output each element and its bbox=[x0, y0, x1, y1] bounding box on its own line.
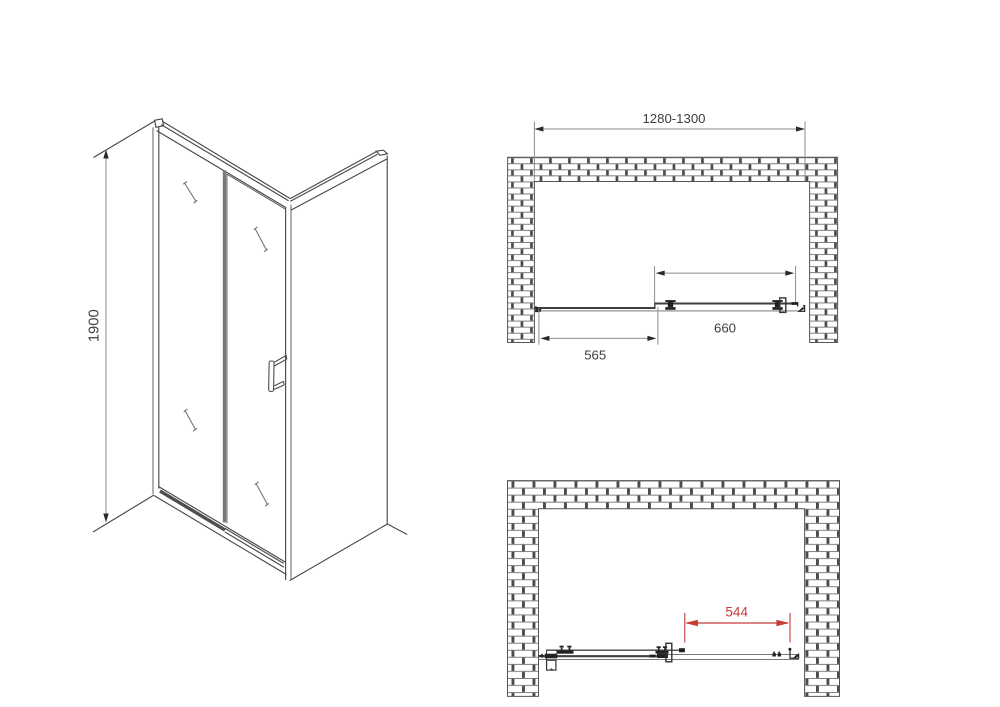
svg-text:544: 544 bbox=[725, 605, 748, 620]
svg-text:565: 565 bbox=[584, 347, 606, 362]
svg-text:1900: 1900 bbox=[86, 309, 102, 342]
svg-text:660: 660 bbox=[714, 320, 736, 335]
svg-text:1280-1300: 1280-1300 bbox=[642, 111, 705, 126]
